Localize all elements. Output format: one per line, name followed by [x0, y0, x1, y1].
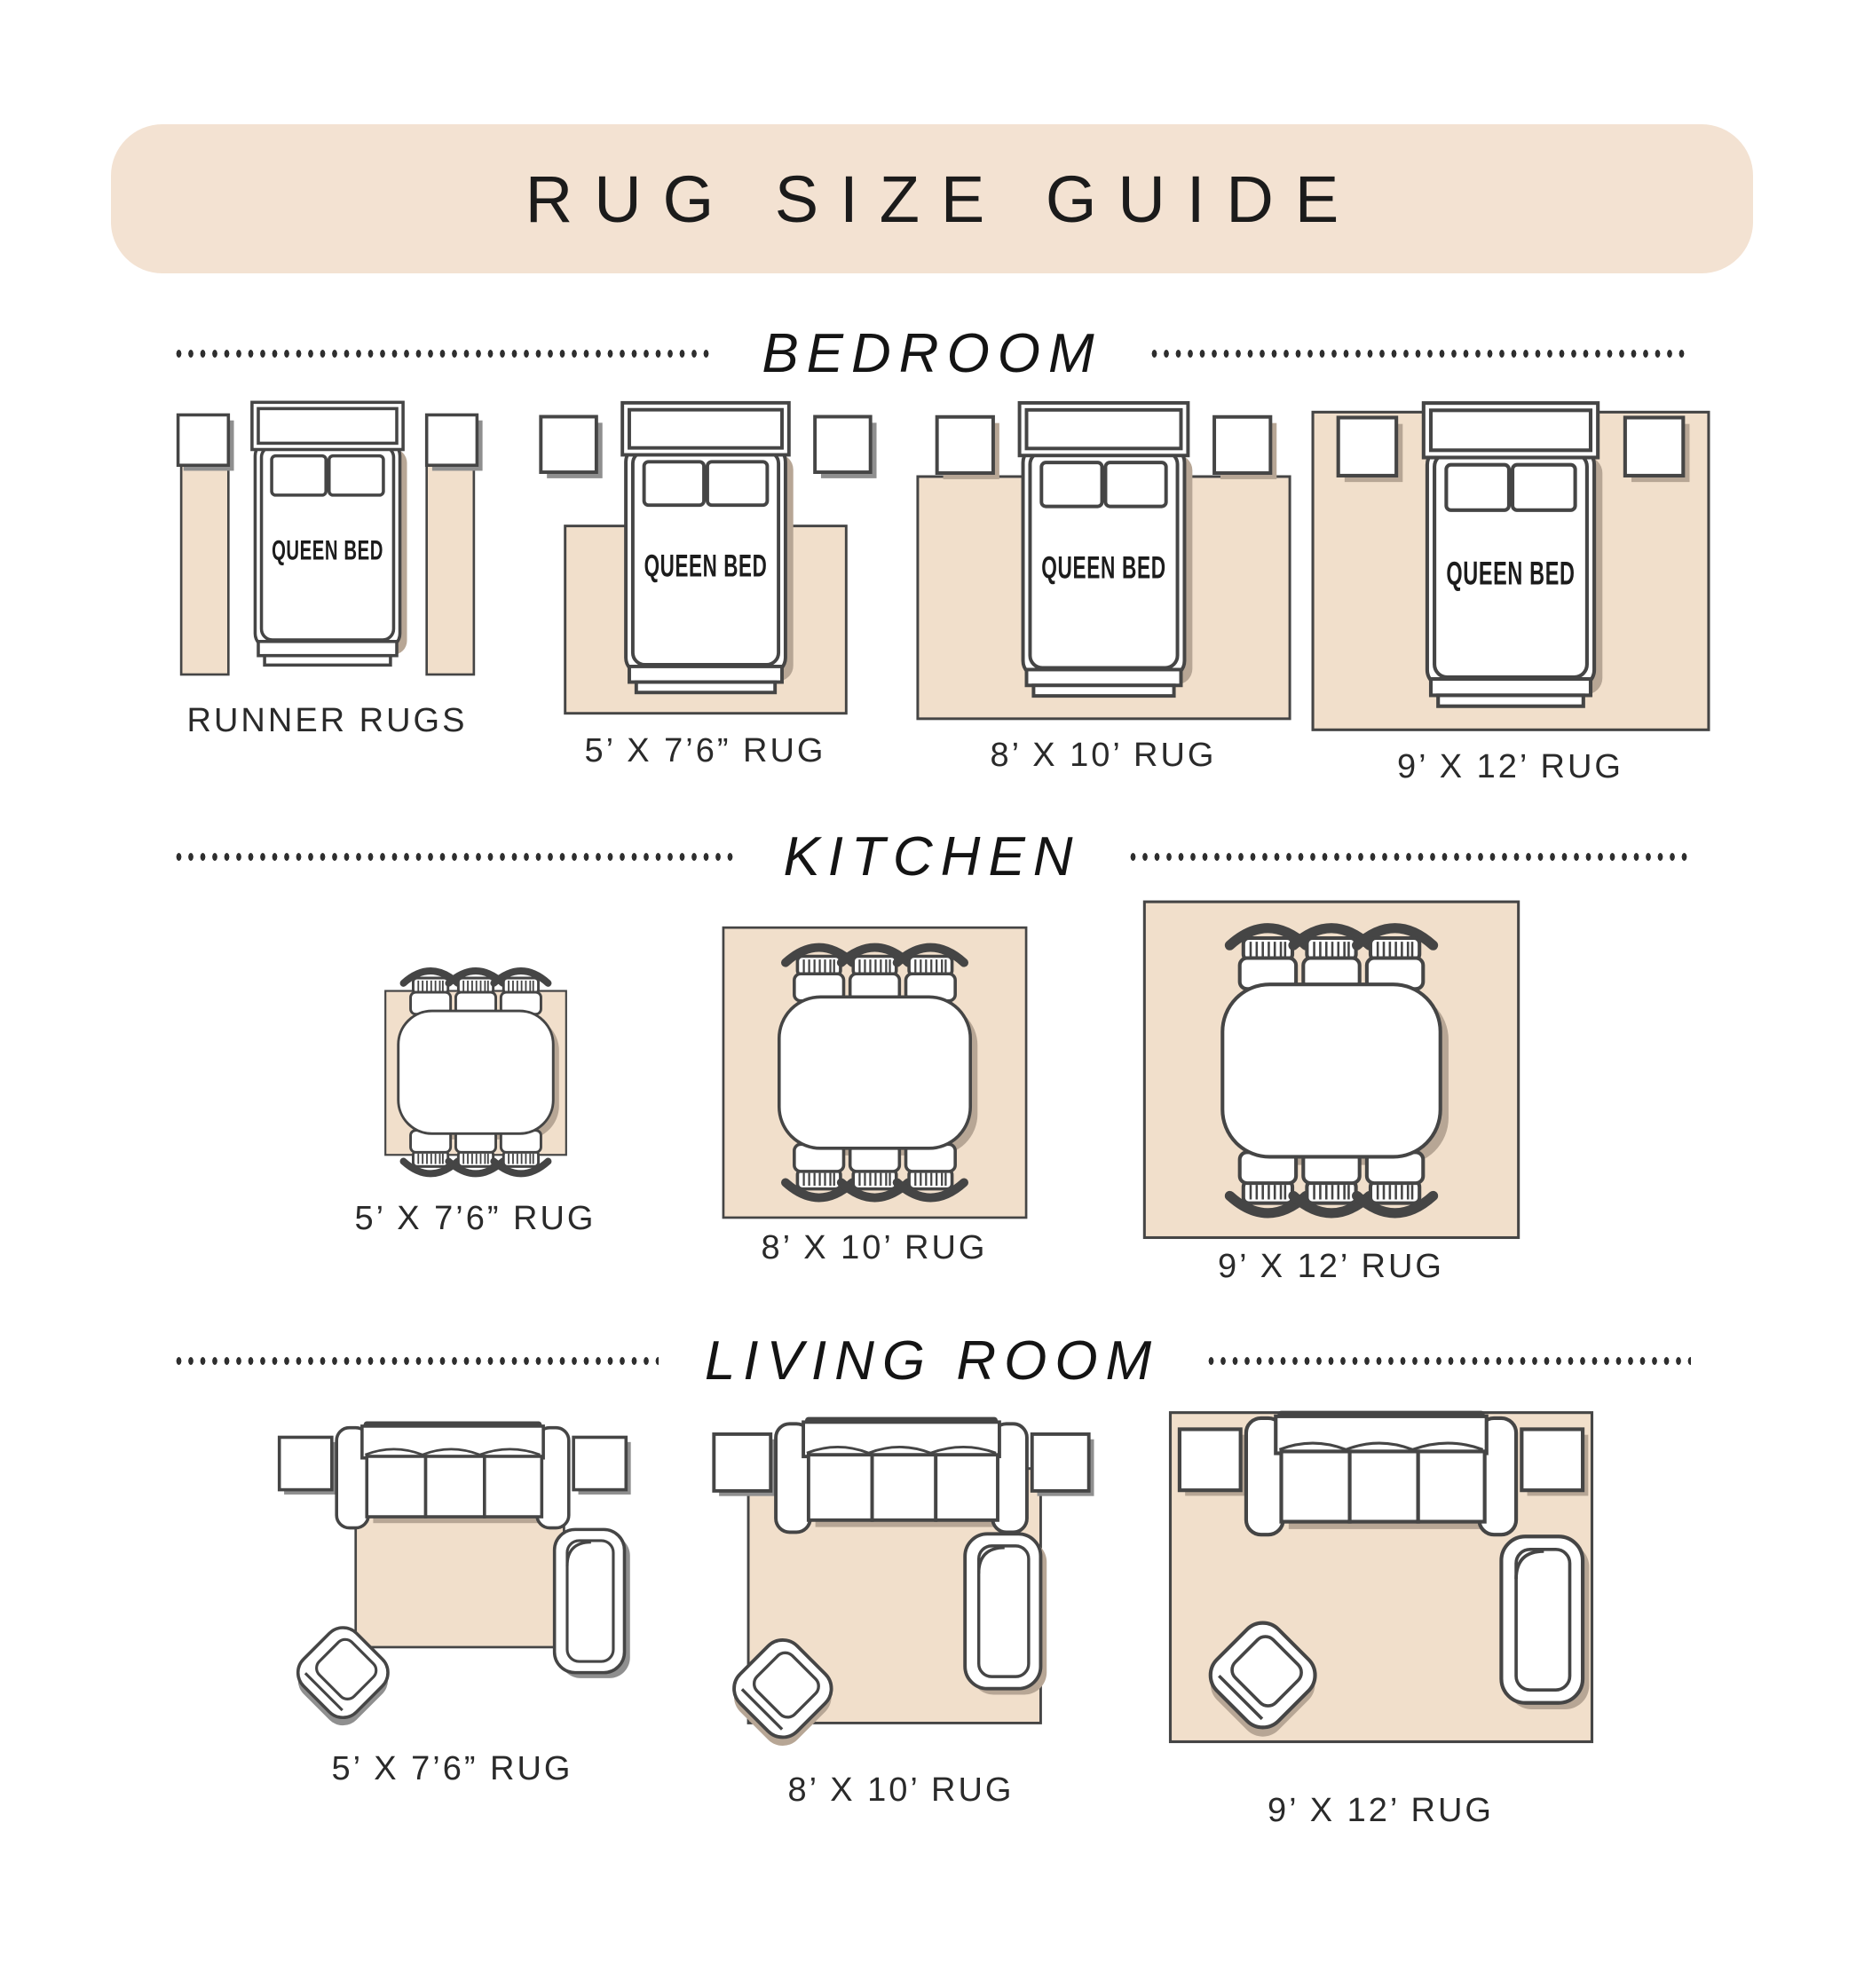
figure-living-9x12: 9’ X 12’ RUG: [1159, 1398, 1603, 1830]
figure-kitchen-8x10: 8’ X 10’ RUG: [699, 921, 1050, 1267]
side-table-left: [1179, 1430, 1240, 1491]
nightstand-right: [426, 414, 477, 465]
figure-caption: 9’ X 12’ RUG: [1397, 748, 1623, 786]
side-table-right: [1521, 1430, 1583, 1491]
dining-chair: [494, 1130, 548, 1173]
bedroom-9x12-diagram: [1311, 398, 1710, 743]
section-title-bedroom: BEDROOM: [756, 322, 1107, 385]
dining-chair: [1229, 927, 1306, 989]
nightstand-left: [936, 417, 992, 473]
nightstand-left: [541, 416, 596, 472]
dining-chair: [841, 947, 907, 1000]
runner-rug-left: [181, 461, 228, 674]
figure-caption: 8’ X 10’ RUG: [991, 737, 1217, 775]
dining-table: [1222, 984, 1440, 1156]
nightstand-right: [1624, 417, 1682, 475]
nightstand-left: [178, 414, 228, 465]
living-9x12-diagram: [1159, 1398, 1603, 1787]
section-header-bedroom: BEDROOM: [173, 325, 1691, 382]
figure-caption: 5’ X 7’6” RUG: [585, 732, 826, 770]
title-banner: RUG SIZE GUIDE: [111, 124, 1753, 273]
dining-chair: [1229, 1152, 1306, 1213]
figure-caption: 9’ X 12’ RUG: [1218, 1248, 1444, 1286]
section-title-kitchen: KITCHEN: [778, 825, 1086, 888]
figure-caption: 5’ X 7’6” RUG: [332, 1750, 573, 1788]
dotted-divider: [173, 1354, 659, 1368]
dotted-divider: [1149, 347, 1691, 360]
figure-kitchen-5x76: 5’ X 7’6” RUG: [334, 950, 618, 1238]
dining-chair: [1293, 927, 1370, 989]
dining-chair: [785, 947, 851, 1000]
side-table-left: [279, 1438, 331, 1490]
runner-rug-right: [426, 461, 473, 674]
queen-bed: [622, 403, 789, 692]
kitchen-9x12-diagram: [1132, 898, 1531, 1243]
figure-kitchen-9x12: 9’ X 12’ RUG: [1132, 898, 1531, 1287]
nightstand-left: [1338, 417, 1395, 475]
dining-chair: [1293, 1152, 1370, 1213]
kitchen-5x76-diagram: [334, 950, 618, 1195]
kitchen-figures-row: 5’ X 7’6” RUG 8’ X 10’ RUG 9’ X: [0, 898, 1864, 1287]
side-table-right: [573, 1438, 626, 1490]
queen-bed: [251, 402, 402, 665]
dining-chair: [494, 971, 548, 1014]
dotted-divider: [173, 347, 715, 360]
sofa: [1245, 1411, 1515, 1535]
area-rug: [355, 1511, 564, 1647]
figure-bedroom-runner: RUNNER RUGS: [154, 398, 501, 740]
figure-living-5x76: 5’ X 7’6” RUG: [262, 1410, 644, 1787]
armchair: [554, 1530, 624, 1673]
dining-chair: [896, 947, 963, 1000]
dining-chair: [448, 1130, 502, 1173]
armchair: [965, 1534, 1040, 1689]
bedroom-8x10-diagram: [911, 398, 1297, 731]
sofa: [336, 1422, 569, 1528]
nightstand-right: [815, 416, 871, 472]
dining-table: [778, 997, 969, 1148]
section-title-living-room: LIVING ROOM: [699, 1329, 1165, 1392]
dotted-divider: [1205, 1354, 1691, 1368]
bedroom-figures-row: RUNNER RUGS 5’ X 7’6” RUG 8’ X 10’ RUG: [0, 398, 1864, 786]
figure-caption: 5’ X 7’6” RUG: [355, 1200, 596, 1238]
queen-bed: [1423, 403, 1597, 706]
side-table-left: [714, 1434, 770, 1491]
dining-chair: [896, 1144, 963, 1197]
figure-bedroom-5x76: 5’ X 7’6” RUG: [515, 398, 896, 770]
bedroom-runner-diagram: [154, 398, 501, 697]
figure-bedroom-8x10: 8’ X 10’ RUG: [911, 398, 1297, 775]
dining-chair: [841, 1144, 907, 1197]
living-8x10-diagram: [695, 1405, 1108, 1766]
section-header-living-room: LIVING ROOM: [173, 1332, 1691, 1389]
queen-bed: [1019, 403, 1188, 696]
page-title: RUG SIZE GUIDE: [504, 162, 1360, 237]
figure-caption: 8’ X 10’ RUG: [762, 1229, 988, 1267]
dining-chair: [785, 1144, 851, 1197]
figure-bedroom-9x12: 9’ X 12’ RUG: [1311, 398, 1710, 786]
living-5x76-diagram: [262, 1410, 644, 1744]
figure-caption: 9’ X 12’ RUG: [1268, 1792, 1494, 1830]
dining-chair: [403, 971, 457, 1014]
sofa: [776, 1417, 1027, 1533]
dining-chair: [1356, 927, 1433, 989]
living-room-figures-row: 5’ X 7’6” RUG 8’ X 10’ RUG: [0, 1398, 1864, 1830]
section-header-kitchen: KITCHEN: [173, 829, 1691, 886]
figure-caption: RUNNER RUGS: [187, 702, 468, 740]
dotted-divider: [173, 850, 737, 864]
armchair: [1501, 1537, 1583, 1704]
figure-caption: 8’ X 10’ RUG: [788, 1771, 1015, 1810]
dining-chair: [1356, 1152, 1433, 1213]
side-table-right: [1031, 1434, 1088, 1491]
kitchen-8x10-diagram: [699, 921, 1050, 1224]
figure-living-8x10: 8’ X 10’ RUG: [695, 1405, 1108, 1810]
dining-table: [398, 1011, 553, 1133]
nightstand-right: [1214, 417, 1270, 473]
bedroom-5x76-diagram: [515, 398, 896, 727]
dining-chair: [448, 971, 502, 1014]
dining-chair: [403, 1130, 457, 1173]
dotted-divider: [1127, 850, 1691, 864]
